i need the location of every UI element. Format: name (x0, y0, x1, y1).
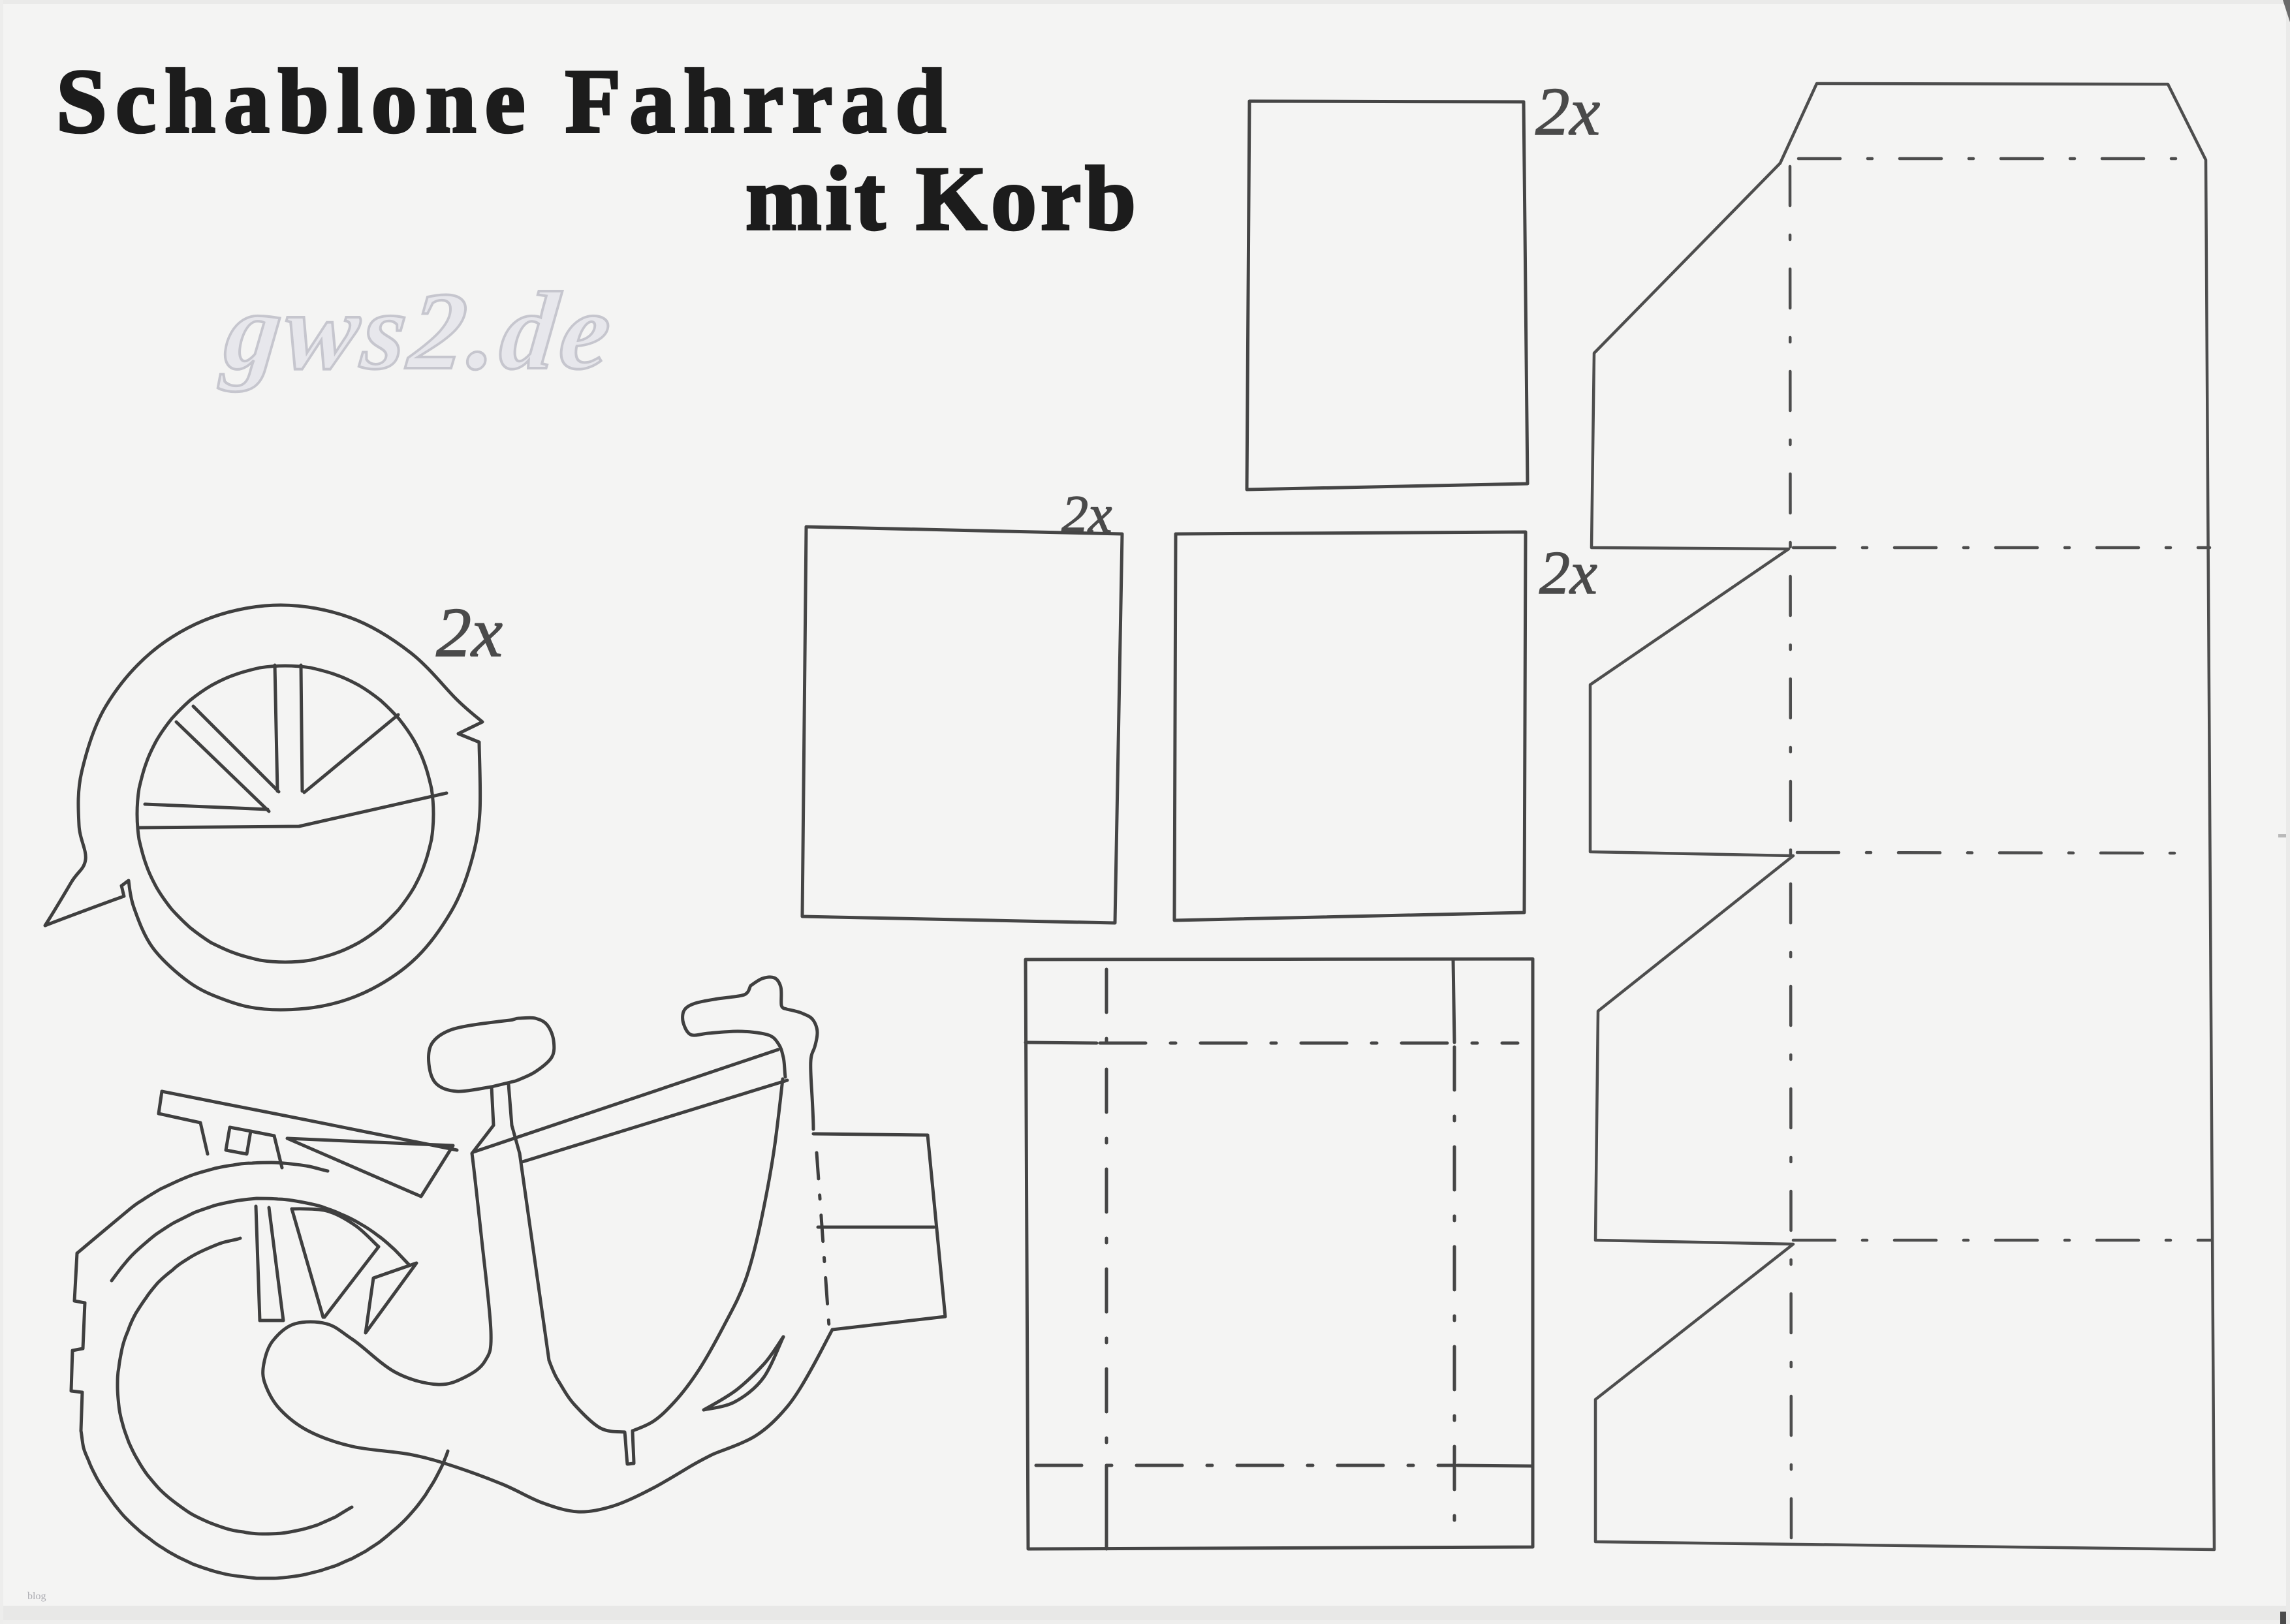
svg-text:Schablone Fahrrad: Schablone Fahrrad (56, 51, 954, 152)
svg-text:2x: 2x (436, 594, 503, 672)
svg-text:blog: blog (27, 1591, 46, 1602)
svg-text:2x: 2x (1535, 73, 1600, 149)
svg-text:gws2.de: gws2.de (217, 269, 620, 392)
svg-text:mit Korb: mit Korb (745, 148, 1140, 249)
svg-text:2x: 2x (1539, 539, 1597, 607)
